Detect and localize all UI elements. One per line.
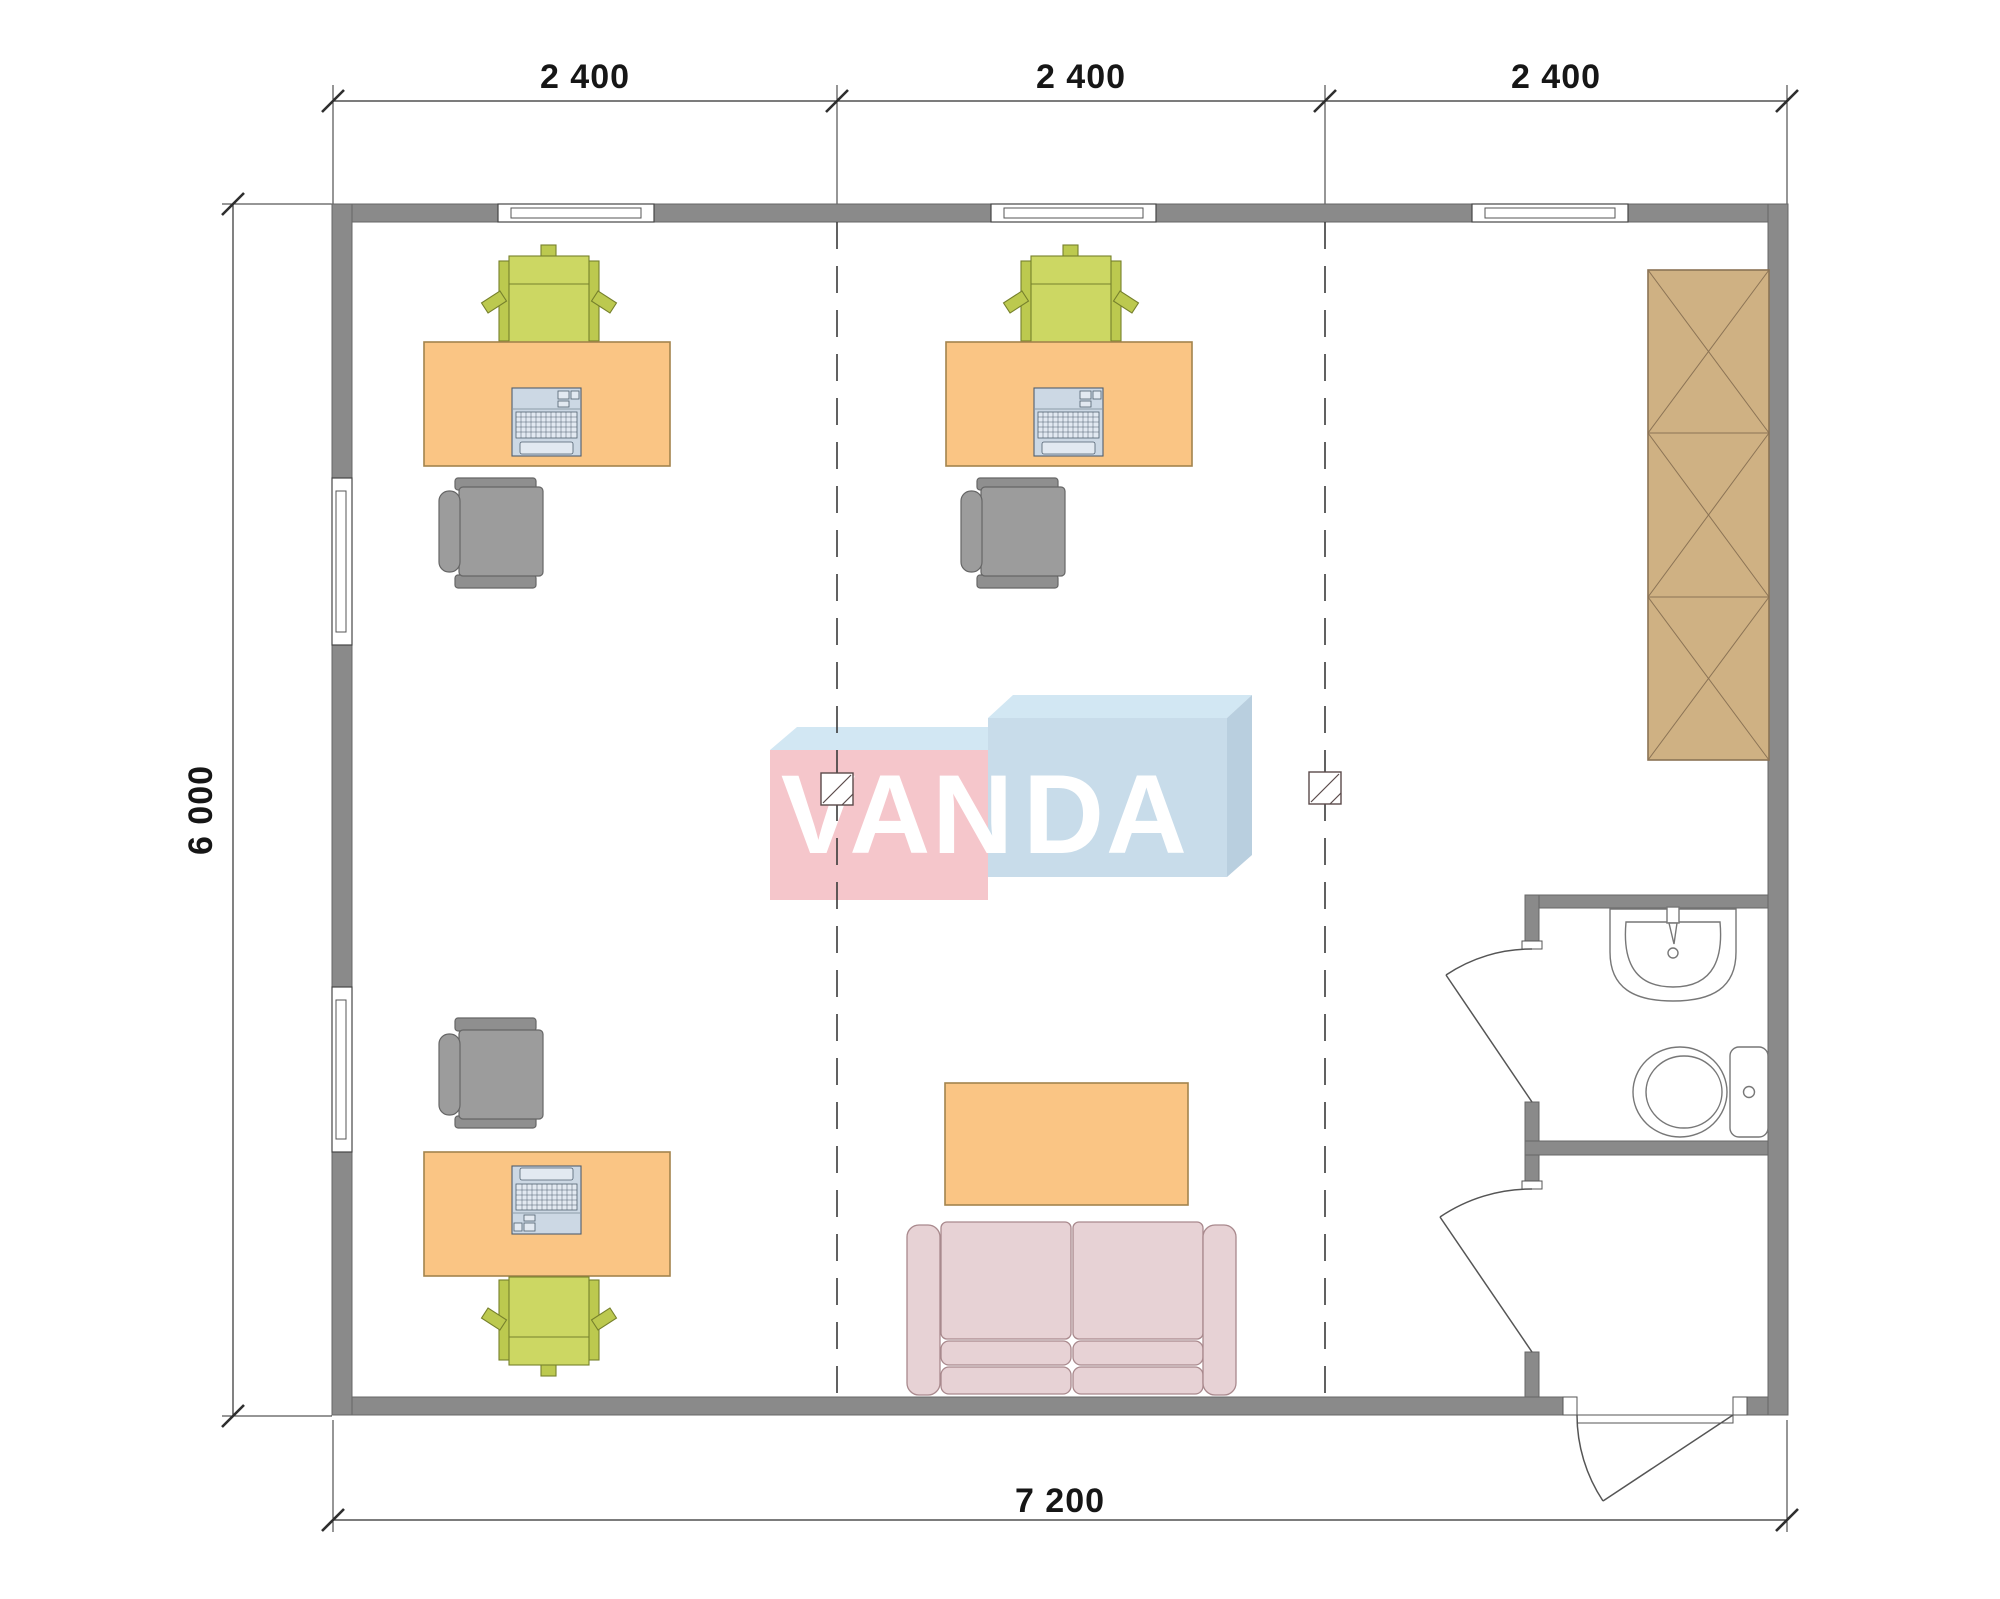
- wall-right-segment: [1768, 204, 1788, 1415]
- wall-left-segment: [332, 1152, 352, 1415]
- sofa-icon: [907, 1222, 1236, 1395]
- window-left-2: [332, 987, 352, 1152]
- window-top-3: [1472, 204, 1628, 222]
- bathroom-door-swing: [1446, 949, 1532, 1102]
- door-jamb: [1525, 1352, 1539, 1397]
- office-chair-icon: [961, 478, 1065, 588]
- wall-left-segment: [332, 204, 352, 478]
- wall-bottom-segment: [332, 1397, 1563, 1415]
- workstation-1: [424, 245, 670, 588]
- toilet-icon: [1633, 1047, 1768, 1137]
- visitor-chair-icon: [482, 1277, 617, 1376]
- logo-blue-box-side: [1227, 695, 1252, 877]
- entry-threshold: [1577, 1415, 1733, 1423]
- entry-door-swing: [1577, 1415, 1733, 1501]
- floor-drain-icon: [821, 773, 853, 805]
- wall-left-segment: [332, 645, 352, 987]
- door-jamb: [1525, 895, 1539, 941]
- dim-label-left: 6 000: [182, 765, 220, 855]
- laptop-icon: [512, 1166, 581, 1234]
- floor-plan-page: VAN DA 2 400 2 400 2 400 6 000 7 200: [0, 0, 2000, 1599]
- logo-text-da: DA: [1023, 752, 1189, 877]
- laptop-icon: [512, 388, 581, 456]
- floor-drain-icon: [1309, 772, 1341, 804]
- door-stop: [1522, 1181, 1542, 1189]
- window-top-1: [498, 204, 654, 222]
- door-jamb: [1525, 1155, 1539, 1181]
- dim-label-bottom: 7 200: [1015, 1482, 1105, 1520]
- laptop-icon: [1034, 388, 1103, 456]
- door-jamb: [1525, 1102, 1539, 1141]
- window-left-1: [332, 478, 352, 645]
- entry-door-stop: [1563, 1397, 1577, 1415]
- door-stop: [1522, 941, 1542, 949]
- vestibule-door-swing: [1440, 1189, 1532, 1352]
- dim-label-top-3: 2 400: [1511, 58, 1601, 96]
- bathroom-north-wall: [1525, 895, 1768, 908]
- visitor-chair-icon: [482, 245, 617, 344]
- wardrobe-icon: [1648, 270, 1769, 760]
- wall-top-segment: [332, 204, 498, 222]
- dim-label-top-1: 2 400: [540, 58, 630, 96]
- logo-pink-box-top: [770, 727, 1015, 750]
- logo-blue-box-top: [988, 695, 1252, 718]
- visitor-chair-icon: [1004, 245, 1139, 344]
- dim-label-top-2: 2 400: [1036, 58, 1126, 96]
- coffee-table: [945, 1083, 1188, 1205]
- dimension-top: 2 400 2 400 2 400: [322, 58, 1798, 204]
- floor-plan-drawing: VAN DA 2 400 2 400 2 400 6 000 7 200: [0, 0, 2000, 1599]
- dimension-left: 6 000: [182, 193, 332, 1427]
- wall-top-segment: [654, 204, 991, 222]
- bathroom-south-wall: [1525, 1141, 1768, 1155]
- wall-top-segment: [1156, 204, 1472, 222]
- office-chair-icon: [439, 1018, 543, 1128]
- workstation-2: [946, 245, 1192, 588]
- wall-top-segment: [1628, 204, 1788, 222]
- window-top-2: [991, 204, 1156, 222]
- entry-door-stop: [1733, 1397, 1747, 1415]
- sink-icon: [1610, 907, 1736, 1001]
- workstation-3: [424, 1018, 670, 1376]
- dimension-bottom: 7 200: [322, 1420, 1798, 1532]
- logo-text-van: VAN: [781, 752, 1015, 877]
- office-chair-icon: [439, 478, 543, 588]
